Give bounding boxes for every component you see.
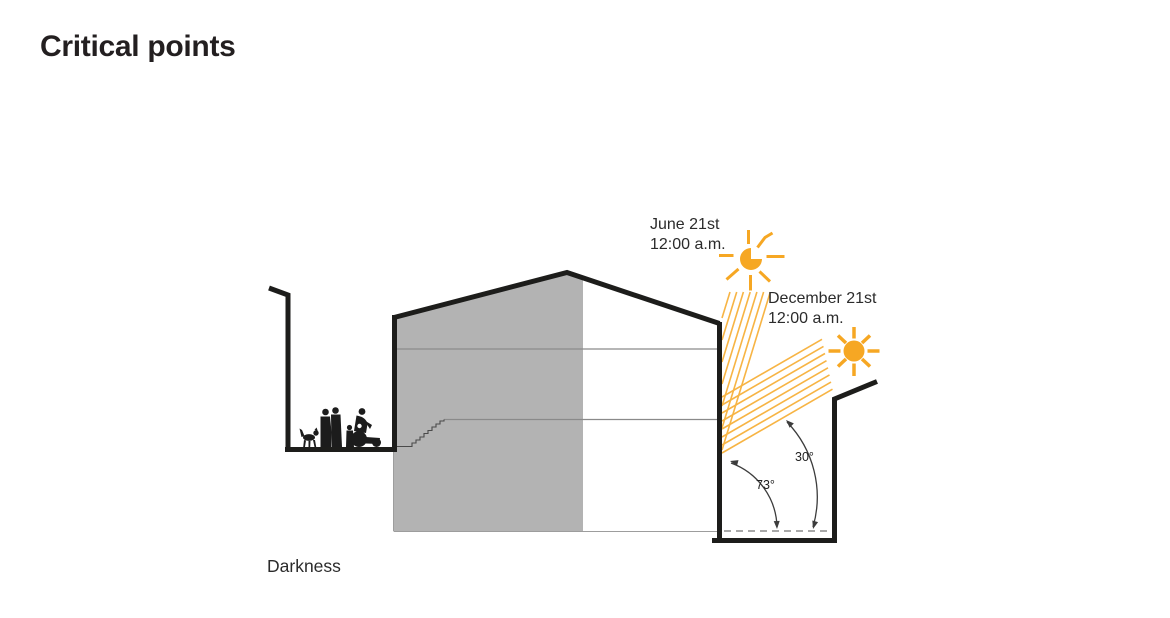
december-time: 12:00 a.m. [768, 309, 877, 329]
section-diagram [0, 0, 1170, 618]
december-date: December 21st [768, 289, 877, 309]
june-angle-label: 73° [756, 478, 775, 492]
angle-arcs [729, 418, 818, 530]
june-sun-label: June 21st 12:00 a.m. [650, 215, 726, 255]
sun-icon [829, 327, 880, 376]
december-sun-rays [722, 339, 833, 453]
december-sun-label: December 21st 12:00 a.m. [768, 289, 877, 329]
darkness-label: Darkness [267, 556, 341, 577]
december-angle-arc [787, 422, 817, 527]
june-sun-rays [722, 292, 770, 450]
june-angle-arc [731, 463, 777, 527]
june-time: 12:00 a.m. [650, 235, 726, 255]
people-silhouettes [300, 407, 382, 447]
left-courtyard-wall [269, 288, 288, 447]
sun-icon [719, 230, 785, 291]
december-angle-label: 30° [795, 450, 814, 464]
june-date: June 21st [650, 215, 726, 235]
